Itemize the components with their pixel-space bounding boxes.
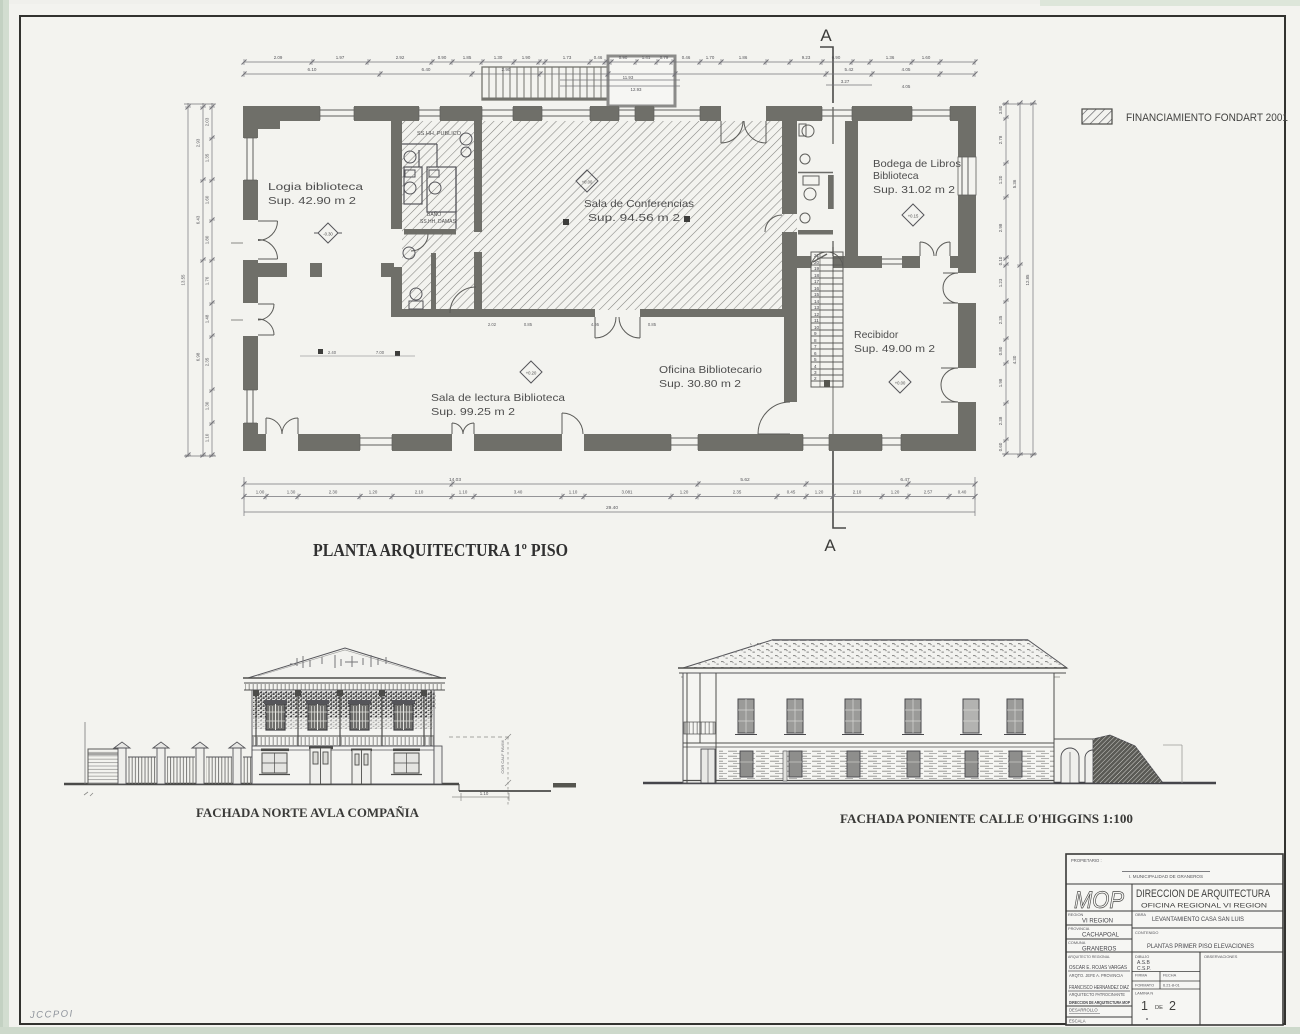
svg-text:0.40: 0.40 [958, 490, 967, 495]
svg-text:0.46: 0.46 [682, 55, 691, 60]
svg-text:Sup. 94.56 m 2: Sup. 94.56 m 2 [588, 212, 680, 224]
svg-text:Recibidor: Recibidor [854, 329, 899, 341]
svg-text:1.10: 1.10 [459, 490, 468, 495]
svg-text:2.02: 2.02 [488, 322, 497, 327]
svg-text:0.90: 0.90 [832, 55, 841, 60]
svg-text:6.10: 6.10 [308, 67, 317, 72]
svg-text:3.081: 3.081 [622, 490, 634, 495]
svg-text:0.85: 0.85 [524, 322, 533, 327]
svg-text:2.57: 2.57 [924, 490, 933, 495]
svg-text:0.80: 0.80 [998, 346, 1003, 355]
svg-text:18: 18 [814, 273, 820, 278]
svg-text:Oficina Bibliotecario: Oficina Bibliotecario [659, 364, 762, 376]
svg-text:DESARROLLO: DESARROLLO [1069, 1008, 1098, 1013]
svg-text:ARQUITECTO PATROCINANTE: ARQUITECTO PATROCINANTE [1069, 992, 1125, 997]
svg-text:7: 7 [814, 344, 817, 349]
svg-text:ARQUITECTO REGIONAL: ARQUITECTO REGIONAL [1068, 954, 1111, 959]
svg-text:6.98: 6.98 [196, 352, 201, 361]
svg-text:5.62: 5.62 [740, 477, 750, 483]
svg-text:2.10: 2.10 [853, 490, 862, 495]
svg-text:COR CALF PAVIM: COR CALF PAVIM [500, 740, 505, 773]
svg-text:OBRA: OBRA [1135, 912, 1146, 917]
svg-text:1.48: 1.48 [205, 314, 210, 323]
svg-text:12.93: 12.93 [631, 87, 643, 92]
svg-text:1.60: 1.60 [205, 195, 210, 204]
svg-text:ESCALA: ESCALA [1069, 1019, 1086, 1024]
svg-text:1.10: 1.10 [569, 490, 578, 495]
svg-text:FIRMA: FIRMA [1135, 973, 1148, 978]
svg-text:1.98: 1.98 [998, 378, 1003, 387]
svg-text:VI REGION: VI REGION [1082, 919, 1113, 925]
svg-text:FACHADA PONIENTE CALLE O: FACHADA PONIENTE CALLE O'HIGGINS 1:100 [840, 812, 1133, 826]
svg-text:Sala de Conferencias: Sala de Conferencias [584, 198, 694, 210]
svg-text:8: 8 [814, 338, 817, 343]
svg-text:DIRECCION DE ARQUITECTURA MOP: DIRECCION DE ARQUITECTURA MOP [1069, 1000, 1131, 1006]
svg-text:2.78: 2.78 [998, 135, 1003, 144]
svg-text:1.30: 1.30 [494, 55, 503, 60]
svg-text:20: 20 [814, 260, 820, 265]
svg-text:OBSERVACIONES: OBSERVACIONES [1204, 954, 1238, 959]
svg-text:PROPIETARIO :: PROPIETARIO : [1071, 858, 1102, 863]
svg-text:29.40: 29.40 [606, 505, 618, 511]
svg-text:9.23: 9.23 [802, 55, 811, 60]
svg-text:-0.30: -0.30 [323, 232, 333, 237]
svg-text:13: 13 [814, 305, 820, 310]
svg-text:FINANCIAMIENTO FONDART 2001: FINANCIAMIENTO FONDART 2001 [1126, 112, 1288, 124]
svg-text:0.10: 0.10 [998, 256, 1003, 265]
svg-text:0.90: 0.90 [619, 55, 628, 60]
svg-text:2.40: 2.40 [328, 350, 337, 355]
svg-text:2: 2 [1169, 999, 1176, 1013]
svg-text:13.55: 13.55 [181, 274, 186, 286]
svg-text:Sup. 42.90 m 2: Sup. 42.90 m 2 [268, 195, 356, 207]
svg-text:2.38: 2.38 [998, 416, 1003, 425]
svg-text:MOP: MOP [1074, 887, 1124, 914]
svg-text:2.09: 2.09 [274, 55, 283, 60]
svg-text:FECHA: FECHA [1163, 973, 1177, 978]
svg-text:2.93: 2.93 [196, 138, 201, 147]
svg-text:0.79: 0.79 [660, 55, 669, 60]
svg-text:14: 14 [814, 299, 820, 304]
svg-text:0.60: 0.60 [998, 442, 1003, 451]
svg-text:4.95: 4.95 [591, 322, 600, 327]
svg-text:2.98: 2.98 [998, 223, 1003, 232]
svg-text:1.70: 1.70 [706, 55, 715, 60]
svg-text:1.60: 1.60 [922, 55, 931, 60]
svg-text:BAÑO: BAÑO [427, 211, 441, 218]
svg-text:1.10: 1.10 [480, 791, 489, 796]
svg-text:4.30: 4.30 [1012, 355, 1017, 364]
svg-text:12.85: 12.85 [1025, 274, 1030, 286]
svg-text:16: 16 [814, 286, 820, 291]
svg-text:3.40: 3.40 [514, 490, 523, 495]
svg-text:0.85: 0.85 [648, 322, 657, 327]
svg-text:2: 2 [814, 376, 817, 381]
svg-text:5.42: 5.42 [845, 67, 854, 72]
svg-text:15: 15 [814, 292, 820, 297]
svg-text:4: 4 [814, 364, 817, 369]
svg-text:1.73: 1.73 [563, 55, 572, 60]
svg-text:19: 19 [814, 266, 820, 271]
svg-text:2.92: 2.92 [396, 55, 405, 60]
svg-text:LAMINA N: LAMINA N [1135, 991, 1153, 996]
svg-text:12: 12 [814, 312, 820, 317]
svg-text:LEVANTAMIENTO CASA SAN LUIS: LEVANTAMIENTO CASA SAN LUIS [1152, 916, 1244, 923]
svg-text:7.00: 7.00 [376, 350, 385, 355]
svg-text:9: 9 [814, 331, 817, 336]
svg-text:4.05: 4.05 [902, 67, 911, 72]
svg-text:2.35: 2.35 [998, 315, 1003, 324]
svg-text:Sup. 49.00 m 2: Sup. 49.00 m 2 [854, 343, 935, 355]
svg-text:1.20: 1.20 [998, 175, 1003, 184]
svg-text:+0.00: +0.00 [895, 381, 906, 386]
svg-text:1.00: 1.00 [256, 490, 265, 495]
svg-text:+0.00: +0.00 [582, 180, 593, 185]
svg-text:6.43: 6.43 [196, 215, 201, 224]
svg-text:A: A [824, 536, 836, 555]
svg-text:CACHAPOAL: CACHAPOAL [1082, 933, 1120, 939]
svg-text:DIRECCION DE ARQUITECTURA: DIRECCION DE ARQUITECTURA [1136, 888, 1271, 900]
svg-text:FORMATO: FORMATO [1135, 983, 1154, 988]
svg-text:6.21-8-01: 6.21-8-01 [1163, 983, 1180, 988]
svg-text:1.30: 1.30 [287, 490, 296, 495]
svg-text:Sup. 99.25 m 2: Sup. 99.25 m 2 [431, 406, 515, 418]
svg-text:1.20: 1.20 [369, 490, 378, 495]
svg-text:6.47: 6.47 [900, 477, 910, 483]
svg-text:2.30: 2.30 [329, 490, 338, 495]
svg-text:REGION: REGION [1068, 912, 1084, 917]
svg-text:FRANCISCO HERNANDEZ DIAZ: FRANCISCO HERNANDEZ DIAZ [1069, 985, 1129, 991]
svg-text:1.30: 1.30 [205, 401, 210, 410]
svg-text:2.03: 2.03 [205, 117, 210, 126]
svg-text:JCCPOI: JCCPOI [29, 1008, 74, 1021]
svg-text:3.27: 3.27 [841, 79, 850, 84]
svg-text:FACHADA NORTE AVLA COMPAÑ: FACHADA NORTE AVLA COMPAÑIA [196, 806, 419, 820]
svg-text:1.90: 1.90 [522, 55, 531, 60]
svg-text:1: 1 [1141, 999, 1148, 1013]
svg-text:CONTENIDO: CONTENIDO [1135, 930, 1158, 935]
svg-text:11: 11 [814, 318, 819, 323]
svg-text:1.10: 1.10 [205, 433, 210, 442]
svg-text:+0.20: +0.20 [526, 371, 537, 376]
svg-text:11.93: 11.93 [623, 75, 634, 80]
svg-text:1.35: 1.35 [205, 153, 210, 162]
svg-text:Logia biblioteca: Logia biblioteca [268, 181, 363, 193]
svg-text:Sup. 30.80 m 2: Sup. 30.80 m 2 [659, 378, 741, 390]
svg-text:1.76: 1.76 [205, 276, 210, 285]
svg-text:Biblioteca: Biblioteca [873, 170, 919, 182]
svg-text:1.23: 1.23 [998, 278, 1003, 287]
svg-text:1.80: 1.80 [205, 235, 210, 244]
svg-text:4.05: 4.05 [902, 84, 911, 89]
svg-text:SS.HH. PUBLICO: SS.HH. PUBLICO [417, 131, 462, 137]
svg-text:1.20: 1.20 [891, 490, 900, 495]
svg-text:0.90: 0.90 [438, 55, 447, 60]
svg-text:1.36: 1.36 [886, 55, 895, 60]
svg-text:2.90: 2.90 [502, 67, 511, 72]
svg-text:1.86: 1.86 [739, 55, 748, 60]
svg-text:1.20: 1.20 [680, 490, 689, 495]
svg-text:1.20: 1.20 [815, 490, 824, 495]
svg-text:Sup. 31.02 m 2: Sup. 31.02 m 2 [873, 184, 955, 196]
svg-text:2.10: 2.10 [415, 490, 424, 495]
svg-text:6: 6 [814, 351, 817, 356]
svg-text:1.97: 1.97 [336, 55, 345, 60]
svg-text:PLANTAS PRIMER PISO ELEVACI: PLANTAS PRIMER PISO ELEVACIONES [1147, 943, 1254, 950]
svg-text:0.45: 0.45 [787, 490, 796, 495]
svg-text:0.46: 0.46 [594, 55, 603, 60]
svg-text:PROVINCIA: PROVINCIA [1068, 926, 1090, 931]
svg-text:DIBUJO: DIBUJO [1135, 954, 1149, 959]
svg-text:I. MUNICIPALIDAD DE GRANEROS: I. MUNICIPALIDAD DE GRANEROS [1129, 874, 1203, 880]
svg-text:6.40: 6.40 [422, 67, 431, 72]
svg-text:OSCAR E. ROJAS VARGAS: OSCAR E. ROJAS VARGAS [1069, 965, 1127, 971]
svg-text:10: 10 [814, 325, 820, 330]
svg-text:COMUNA: COMUNA [1068, 940, 1086, 945]
svg-text:2.35: 2.35 [733, 490, 742, 495]
svg-text:14.03: 14.03 [449, 477, 461, 483]
svg-text:SS.HH. DAMAS: SS.HH. DAMAS [420, 219, 457, 225]
svg-text:DE: DE [1155, 1005, 1163, 1011]
svg-text:1.85: 1.85 [463, 55, 472, 60]
svg-text:ARQTO. JEFE A. PROVINCIA: ARQTO. JEFE A. PROVINCIA [1069, 973, 1123, 978]
svg-text:PLANTA ARQUITECTURA 1º PISO: PLANTA ARQUITECTURA 1º PISO [313, 540, 568, 560]
svg-text:2.35: 2.35 [205, 357, 210, 366]
svg-text:1.41: 1.41 [642, 55, 651, 60]
svg-text:+0.15: +0.15 [908, 214, 919, 219]
svg-text:3.80: 3.80 [998, 105, 1003, 114]
svg-text:OFICINA REGIONAL VI REGIO: OFICINA REGIONAL VI REGION [1141, 903, 1267, 910]
svg-text:5: 5 [814, 357, 817, 362]
svg-text:3: 3 [814, 370, 817, 375]
svg-text:Bodega de Libros: Bodega de Libros [873, 158, 961, 170]
svg-text:17: 17 [814, 279, 820, 284]
svg-text:A: A [820, 26, 832, 45]
svg-text:5.36: 5.36 [1012, 179, 1017, 188]
svg-text:Sala de lectura Biblioteca: Sala de lectura Biblioteca [431, 392, 565, 404]
